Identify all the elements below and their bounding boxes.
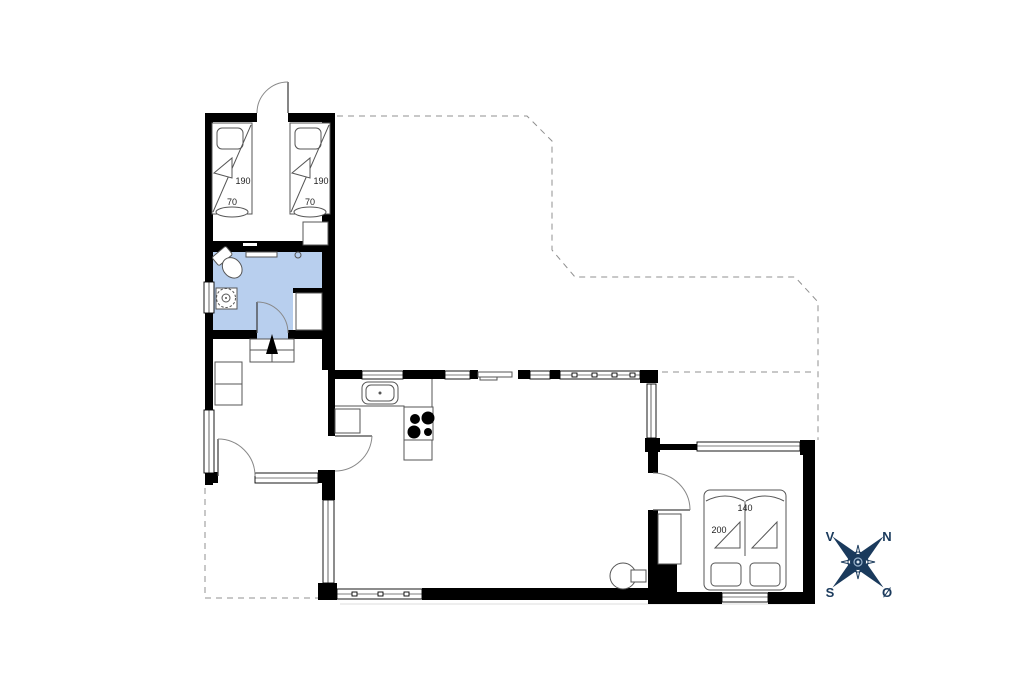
terrace-outline-southwest (205, 488, 320, 598)
window (337, 589, 422, 599)
window (323, 500, 334, 583)
kitchen-cabinet (335, 409, 360, 433)
single-bed-1: 190 70 (212, 123, 252, 217)
floor-plan-canvas: 190 70 190 70 (0, 0, 1024, 682)
window (647, 384, 656, 438)
chimney (648, 560, 677, 594)
compass-label-west: V (826, 529, 835, 544)
shower-closet (296, 293, 322, 330)
wardrobe (303, 222, 328, 245)
kitchen-sink (362, 382, 398, 404)
window (255, 473, 318, 483)
compass-label-east: Ø (882, 585, 892, 600)
compass-label-north: N (882, 529, 891, 544)
window (530, 371, 550, 379)
window (445, 371, 470, 379)
radiator (246, 252, 277, 257)
bedroom-door (653, 473, 690, 510)
bed1-length-label: 190 (235, 176, 250, 186)
window (362, 371, 403, 379)
hall-closet (215, 362, 242, 405)
floor-plan-page: 190 70 190 70 (0, 0, 1024, 682)
window (204, 410, 214, 473)
kitchen (335, 379, 435, 460)
window (204, 282, 214, 313)
window (560, 371, 640, 379)
compass-label-south: S (826, 585, 835, 600)
sliding-door (478, 372, 512, 380)
hall-exterior-door (218, 439, 255, 476)
wash-basin (216, 288, 237, 309)
single-bed-2: 190 70 (290, 123, 330, 217)
exterior-door-north (257, 82, 288, 113)
compass-rose: V N S Ø (807, 511, 909, 613)
window (722, 593, 768, 602)
bedroom-closet (658, 514, 681, 564)
window (697, 442, 800, 451)
terrace-outline-north (337, 116, 818, 440)
bed2-length-label: 190 (313, 176, 328, 186)
double-bed: 140 200 (704, 490, 786, 590)
bed1-width-label: 70 (227, 197, 237, 207)
wood-stove (610, 563, 646, 589)
double-bed-width-label: 140 (737, 503, 752, 513)
bed2-width-label: 70 (305, 197, 315, 207)
double-bed-length-label: 200 (711, 525, 726, 535)
stove (404, 407, 435, 440)
hall-living-door (335, 436, 372, 471)
